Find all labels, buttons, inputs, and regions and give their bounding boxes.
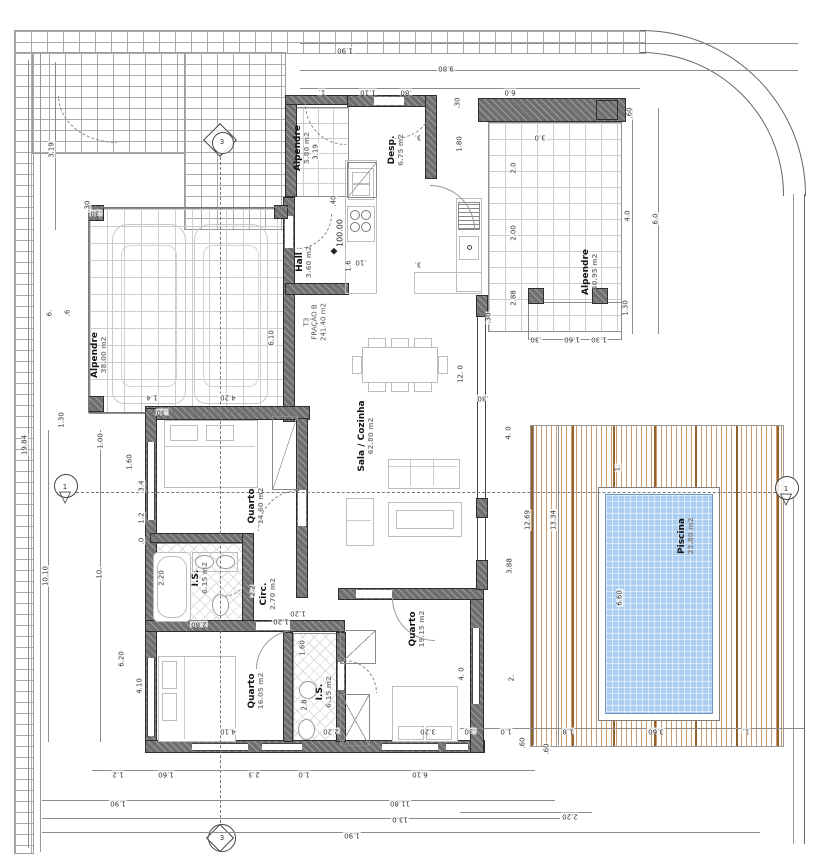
dimension-label: 6.10 <box>411 771 429 778</box>
porch-post <box>596 100 618 120</box>
room-area: 23.80 m2 <box>687 518 695 555</box>
toilet <box>298 719 315 740</box>
sidewalk-brick-top <box>14 30 646 54</box>
room-area: 3.60 m2 <box>305 246 313 278</box>
dimension-label: 2.80 <box>190 621 208 628</box>
dimension-label: 2.8 <box>302 698 309 711</box>
level-mark: 100.00 <box>336 219 345 247</box>
dimension-label: 1.60 <box>127 453 134 471</box>
door-opening <box>298 490 306 526</box>
room-area: 62.80 m2 <box>367 400 375 471</box>
dimension-label: 3.20 <box>419 728 437 735</box>
dimension-label: .10 <box>354 259 367 266</box>
window <box>472 628 480 704</box>
dimension-label: 1.0 <box>297 771 310 778</box>
dimension-label: 3. <box>414 261 423 268</box>
chair <box>368 382 386 392</box>
dimension-label: 12.69 <box>525 509 532 531</box>
dimension-label: 4.20 <box>219 394 237 401</box>
dimension-label: 10.10 <box>43 565 50 587</box>
unit-code: T3 <box>302 318 310 327</box>
dimension-label: 3.0 <box>533 134 546 141</box>
window <box>477 317 486 498</box>
dimension-label: .60 <box>520 736 527 749</box>
section-marker-number: 1 <box>784 485 788 493</box>
room-label-piscina: Piscina 23.80 m2 <box>677 518 695 555</box>
dimension-label: 6.0 <box>653 212 660 225</box>
section-marker-number: 3 <box>220 138 224 146</box>
pantry-shelf <box>347 162 377 198</box>
dimension-label: .30 <box>455 96 462 109</box>
dimension-label: 4.10 <box>219 728 237 735</box>
dimension-label: 13.34 <box>551 509 558 531</box>
dim-line <box>558 425 559 745</box>
dim-line <box>42 818 560 819</box>
right-porch-step <box>528 302 622 340</box>
floor-plan: 3 3 ▽ 1 ▽ 1 Alpendre 38.00 m2 Alpendre 5… <box>0 0 816 856</box>
dimension-label: 2.20 <box>159 569 166 587</box>
dimension-label: 1.80 <box>457 135 464 153</box>
door-arc <box>430 185 475 230</box>
dim-line <box>632 108 633 334</box>
dimension-label: 2.20 <box>561 813 579 820</box>
section-marker-number: 1 <box>63 483 67 491</box>
dimension-label: .30 <box>89 210 102 217</box>
chair <box>414 382 432 392</box>
room-area: 19.15 m2 <box>418 611 426 648</box>
dimension-label: 2. <box>509 674 516 683</box>
room-name: Quarto <box>247 673 257 710</box>
dimension-label: 2.0 <box>511 161 518 174</box>
dimension-label: .6 <box>65 309 72 318</box>
stove-burner <box>361 222 371 232</box>
pillow <box>162 693 177 721</box>
dimension-label: 3.4 <box>139 479 146 492</box>
dimension-label: .30 <box>476 395 489 402</box>
bathtub-inner <box>157 556 187 618</box>
dimension-label: .30 <box>529 336 542 343</box>
sofa <box>388 459 460 489</box>
door-opening <box>356 590 392 598</box>
dimension-label: 1.60 <box>563 336 581 343</box>
dimension-label: 3.19 <box>49 141 56 159</box>
dimension-label: 1.20 <box>289 610 307 617</box>
window <box>446 743 468 751</box>
window <box>477 518 486 560</box>
room-label-is2: I.S. 6.15 m2 <box>315 676 333 708</box>
dimension-label: .60 <box>627 106 634 119</box>
dimension-label: 2.00 <box>511 224 518 242</box>
room-name: Alpendre <box>581 249 591 295</box>
dimension-label: 6.10 <box>269 329 276 347</box>
dimension-label: 13.0 <box>391 816 409 823</box>
dimension-label: 6.60 <box>617 589 624 607</box>
dimension-label: 1.20 <box>272 618 290 625</box>
room-name: Desp. <box>387 134 397 166</box>
dimension-label: 1.0 <box>499 728 512 735</box>
wardrobe <box>272 416 298 490</box>
room-label-right-porch: Alpendre 40.95 m2 <box>581 249 599 295</box>
dim-line <box>533 425 534 745</box>
dimension-label: 4. 0 <box>506 425 513 440</box>
dimension-label: 1.30 <box>623 299 630 317</box>
dimension-label: 1.6 <box>346 259 353 272</box>
dimension-label: 1.10 <box>359 89 377 96</box>
shower <box>340 694 370 746</box>
window <box>147 658 155 736</box>
site-boundary-left <box>40 52 41 852</box>
dimension-label: 1.2 <box>139 511 146 524</box>
site-boundary-right-outer <box>804 194 805 844</box>
garage-edge <box>88 412 290 413</box>
room-name: Quarto <box>247 488 257 525</box>
dimension-label: 6.0 <box>503 89 516 96</box>
section-marker-number: 3 <box>220 834 224 842</box>
stove-burner <box>350 222 360 232</box>
dim-line <box>100 430 101 742</box>
room-label-hall: Hall 3.60 m2 <box>295 246 313 278</box>
dimension-label: 4.10 <box>137 677 144 695</box>
dimension-label: 1. <box>615 464 622 473</box>
room-area: 6.75 m2 <box>397 134 405 166</box>
dim-line <box>300 43 798 44</box>
dimension-label: 1.60 <box>157 771 175 778</box>
room-name: Alpendre <box>293 125 303 171</box>
dimension-label: 19.84 <box>22 434 29 456</box>
pillow <box>170 425 198 441</box>
room-name: Circ. <box>259 578 269 610</box>
dimension-label: .30 <box>486 311 493 324</box>
dimension-label: .0 <box>139 537 146 546</box>
dimension-label: 3. <box>414 134 423 141</box>
room-label-quarto3: Quarto 19.15 m2 <box>408 611 426 648</box>
loveseat-seam <box>347 520 371 521</box>
dimension-label: 1.90 <box>336 47 354 54</box>
room-area: 40.95 m2 <box>591 249 599 295</box>
kitchen-island <box>414 272 482 294</box>
unit-area: 241.40 m2 <box>319 303 327 341</box>
sofa-seam <box>410 460 411 486</box>
level-diamond-icon: ◆ <box>331 248 338 257</box>
dimension-label: .80 <box>399 89 412 96</box>
sofa-back-line <box>389 466 457 467</box>
room-name: Piscina <box>677 518 687 555</box>
door-opening <box>285 216 293 248</box>
room-label-circ: Circ. 2.70 m2 <box>259 578 277 610</box>
chair <box>368 338 386 348</box>
dimension-label: .40 <box>331 194 338 207</box>
window <box>147 442 155 520</box>
dimension-label: 4. 0 <box>459 666 466 681</box>
door-arc <box>256 630 295 669</box>
room-label-quarto1: Quarto 14.60 m2 <box>247 488 265 525</box>
room-label-front-porch: Alpendre 5.80 m2 <box>293 125 311 171</box>
dimension-label: .30 <box>155 409 168 416</box>
room-name: I.S. <box>191 562 201 594</box>
blanket-line <box>165 446 255 447</box>
dimension-label: .60 <box>544 742 551 755</box>
window <box>262 743 302 751</box>
stove-burner <box>350 210 360 220</box>
dimension-label: 2.2 <box>250 584 257 597</box>
wall-post <box>476 498 488 518</box>
room-label-is1: I.S. 6.15 m2 <box>191 562 209 594</box>
dimension-label: 6.20 <box>119 650 126 668</box>
dimension-label: 1. <box>742 728 751 735</box>
pillow <box>162 661 177 689</box>
dimension-label: 10. <box>97 566 104 579</box>
dimension-label: 11.80 <box>389 800 411 807</box>
dimension-label: 1.2 <box>111 771 124 778</box>
porch-post <box>528 288 544 304</box>
chair <box>438 356 448 374</box>
room-name: I.S. <box>315 676 325 708</box>
dimension-label: 1. <box>318 89 327 96</box>
room-area: 6.15 m2 <box>325 676 333 708</box>
chair <box>391 338 409 348</box>
room-area: 14.60 m2 <box>257 488 265 525</box>
car <box>112 224 186 404</box>
appliance-knob <box>467 245 472 250</box>
section-marker-triangle-icon: ▽ <box>780 491 792 507</box>
blanket-line <box>184 657 185 739</box>
sink <box>216 555 235 569</box>
garage-edge <box>88 207 89 413</box>
dimension-label: .30 <box>463 728 476 735</box>
dim-line <box>300 88 640 89</box>
room-area: 2.70 m2 <box>269 578 277 610</box>
wall-segment <box>285 283 349 295</box>
dimension-label: 4.0 <box>625 209 632 222</box>
room-name: Alpendre <box>90 332 100 378</box>
room-area: 16.05 m2 <box>257 673 265 710</box>
chair <box>352 356 362 374</box>
dimension-label: 9.80 <box>437 65 455 72</box>
room-area: 5.80 m2 <box>303 125 311 171</box>
unit-label: T3 FRAÇÃO B 241.40 m2 <box>302 303 327 341</box>
site-boundary-right-inner <box>793 194 794 844</box>
door-arc <box>344 660 377 693</box>
room-label-quarto2: Quarto 16.05 m2 <box>247 673 265 710</box>
wardrobe <box>340 630 376 664</box>
chair <box>414 338 432 348</box>
garage-post <box>88 396 104 412</box>
section-line-horizontal <box>76 492 776 493</box>
dimension-label: 1.8 <box>561 728 574 735</box>
dimension-label: 1.30 <box>59 411 66 429</box>
room-name: Sala / Cozinha <box>357 400 367 471</box>
dim-line <box>300 70 798 71</box>
wall-post <box>476 560 488 590</box>
window <box>382 743 438 751</box>
room-name: Hall <box>295 246 305 278</box>
room-label-garage: Alpendre 38.00 m2 <box>90 332 108 378</box>
kerb-curve-inner <box>640 52 784 196</box>
dimension-label: 1.60 <box>300 639 307 657</box>
wall-segment <box>150 533 250 543</box>
door-arc <box>297 214 332 249</box>
dimension-label: 3.60 <box>647 728 665 735</box>
dimension-label: 6. <box>47 309 54 318</box>
stove-burner <box>361 210 371 220</box>
loveseat <box>346 498 374 546</box>
dimension-label: 2.20 <box>322 728 340 735</box>
room-name: Quarto <box>408 611 418 648</box>
room-label-desp: Desp. 6.75 m2 <box>387 134 405 166</box>
dimension-label: 12. 0 <box>458 364 465 384</box>
room-area: 6.15 m2 <box>201 562 209 594</box>
sofa-seam <box>433 460 434 486</box>
dimension-label: 1.4 <box>145 394 158 401</box>
dimension-label: 1.30 <box>590 336 608 343</box>
room-label-sala: Sala / Cozinha 62.80 m2 <box>357 400 375 471</box>
dimension-label: 3.19 <box>313 143 320 161</box>
dimension-label: 1.00 <box>98 432 105 450</box>
dining-table <box>362 347 438 383</box>
dimension-label: 3.88 <box>507 557 514 575</box>
unit-fraction: FRAÇÃO B <box>311 304 319 339</box>
chair <box>391 382 409 392</box>
dimension-label: 2.3 <box>247 771 260 778</box>
rug-inner <box>396 510 454 529</box>
dimension-label: 1.90 <box>109 800 127 807</box>
car <box>194 224 268 404</box>
room-area: 38.00 m2 <box>100 332 108 378</box>
dimension-label: 2.88 <box>511 289 518 307</box>
dim-line <box>42 832 760 833</box>
section-marker-triangle-icon: ▽ <box>59 489 71 505</box>
garage-edge <box>88 207 290 208</box>
dimension-label: 1.90 <box>343 832 361 839</box>
